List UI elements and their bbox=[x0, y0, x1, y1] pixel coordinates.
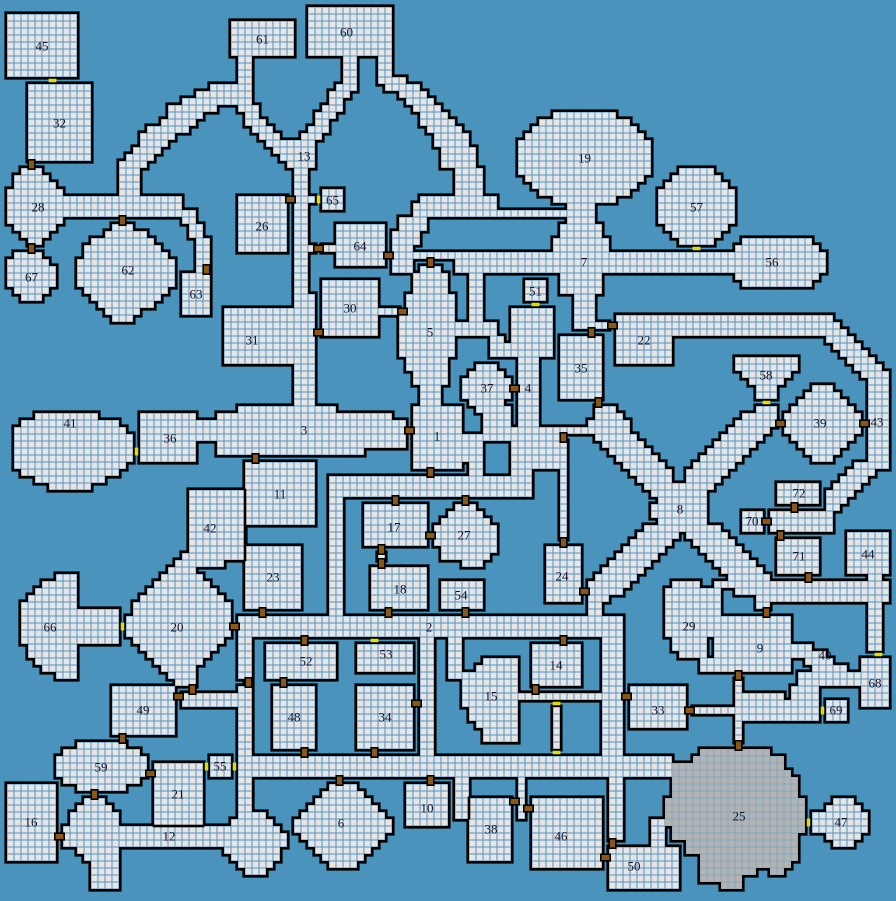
svg-text:52: 52 bbox=[300, 654, 313, 669]
svg-text:33: 33 bbox=[652, 703, 665, 718]
svg-text:4: 4 bbox=[525, 381, 532, 396]
svg-text:5: 5 bbox=[427, 325, 434, 340]
svg-text:63: 63 bbox=[190, 287, 203, 302]
svg-text:11: 11 bbox=[274, 487, 287, 502]
svg-text:40: 40 bbox=[819, 648, 832, 663]
svg-text:16: 16 bbox=[25, 815, 39, 830]
svg-text:17: 17 bbox=[388, 520, 402, 535]
svg-text:47: 47 bbox=[835, 815, 849, 830]
svg-text:68: 68 bbox=[869, 676, 882, 691]
svg-text:27: 27 bbox=[458, 528, 472, 543]
svg-text:55: 55 bbox=[214, 759, 227, 774]
svg-text:72: 72 bbox=[793, 486, 806, 501]
svg-text:58: 58 bbox=[760, 368, 773, 383]
svg-text:69: 69 bbox=[830, 703, 843, 718]
svg-text:48: 48 bbox=[288, 710, 301, 725]
svg-text:34: 34 bbox=[379, 710, 393, 725]
svg-text:31: 31 bbox=[246, 333, 259, 348]
svg-text:2: 2 bbox=[426, 620, 433, 635]
svg-text:29: 29 bbox=[683, 619, 696, 634]
svg-text:9: 9 bbox=[757, 641, 764, 656]
svg-text:57: 57 bbox=[690, 200, 704, 215]
svg-text:28: 28 bbox=[32, 200, 45, 215]
svg-text:20: 20 bbox=[171, 620, 184, 635]
svg-text:56: 56 bbox=[766, 255, 780, 270]
svg-text:22: 22 bbox=[638, 333, 651, 348]
svg-text:7: 7 bbox=[581, 255, 588, 270]
svg-text:70: 70 bbox=[746, 514, 759, 529]
svg-text:25: 25 bbox=[733, 809, 746, 824]
svg-text:49: 49 bbox=[137, 703, 150, 718]
svg-text:59: 59 bbox=[95, 760, 108, 775]
svg-text:18: 18 bbox=[394, 582, 407, 597]
svg-text:45: 45 bbox=[36, 39, 49, 54]
svg-text:64: 64 bbox=[354, 239, 368, 254]
svg-text:65: 65 bbox=[326, 193, 339, 208]
svg-text:3: 3 bbox=[301, 423, 308, 438]
svg-text:14: 14 bbox=[550, 658, 564, 673]
svg-text:46: 46 bbox=[555, 829, 569, 844]
svg-text:60: 60 bbox=[340, 25, 353, 40]
svg-text:43: 43 bbox=[871, 415, 884, 430]
svg-text:13: 13 bbox=[298, 149, 311, 164]
svg-text:44: 44 bbox=[862, 547, 876, 562]
svg-text:53: 53 bbox=[380, 647, 393, 662]
svg-text:8: 8 bbox=[677, 502, 684, 517]
svg-text:54: 54 bbox=[455, 588, 469, 603]
svg-text:41: 41 bbox=[64, 416, 77, 431]
svg-text:66: 66 bbox=[44, 620, 58, 635]
svg-text:30: 30 bbox=[344, 301, 357, 316]
svg-text:1: 1 bbox=[434, 429, 441, 444]
svg-text:26: 26 bbox=[256, 219, 270, 234]
svg-text:24: 24 bbox=[556, 569, 570, 584]
svg-text:6: 6 bbox=[338, 816, 345, 831]
svg-text:62: 62 bbox=[122, 263, 135, 278]
svg-text:42: 42 bbox=[204, 521, 217, 536]
svg-text:51: 51 bbox=[529, 284, 542, 299]
svg-text:61: 61 bbox=[256, 32, 269, 47]
svg-text:32: 32 bbox=[53, 116, 66, 131]
svg-text:12: 12 bbox=[163, 829, 176, 844]
svg-text:19: 19 bbox=[578, 151, 591, 166]
svg-text:38: 38 bbox=[485, 822, 498, 837]
svg-text:50: 50 bbox=[628, 859, 641, 874]
svg-text:23: 23 bbox=[267, 570, 280, 585]
svg-text:36: 36 bbox=[164, 431, 178, 446]
svg-text:21: 21 bbox=[172, 787, 185, 802]
svg-text:39: 39 bbox=[814, 416, 827, 431]
svg-text:35: 35 bbox=[575, 361, 588, 376]
svg-text:37: 37 bbox=[481, 381, 495, 396]
svg-text:67: 67 bbox=[25, 270, 39, 285]
svg-text:10: 10 bbox=[421, 801, 434, 816]
svg-text:71: 71 bbox=[793, 549, 806, 564]
svg-text:15: 15 bbox=[485, 689, 498, 704]
